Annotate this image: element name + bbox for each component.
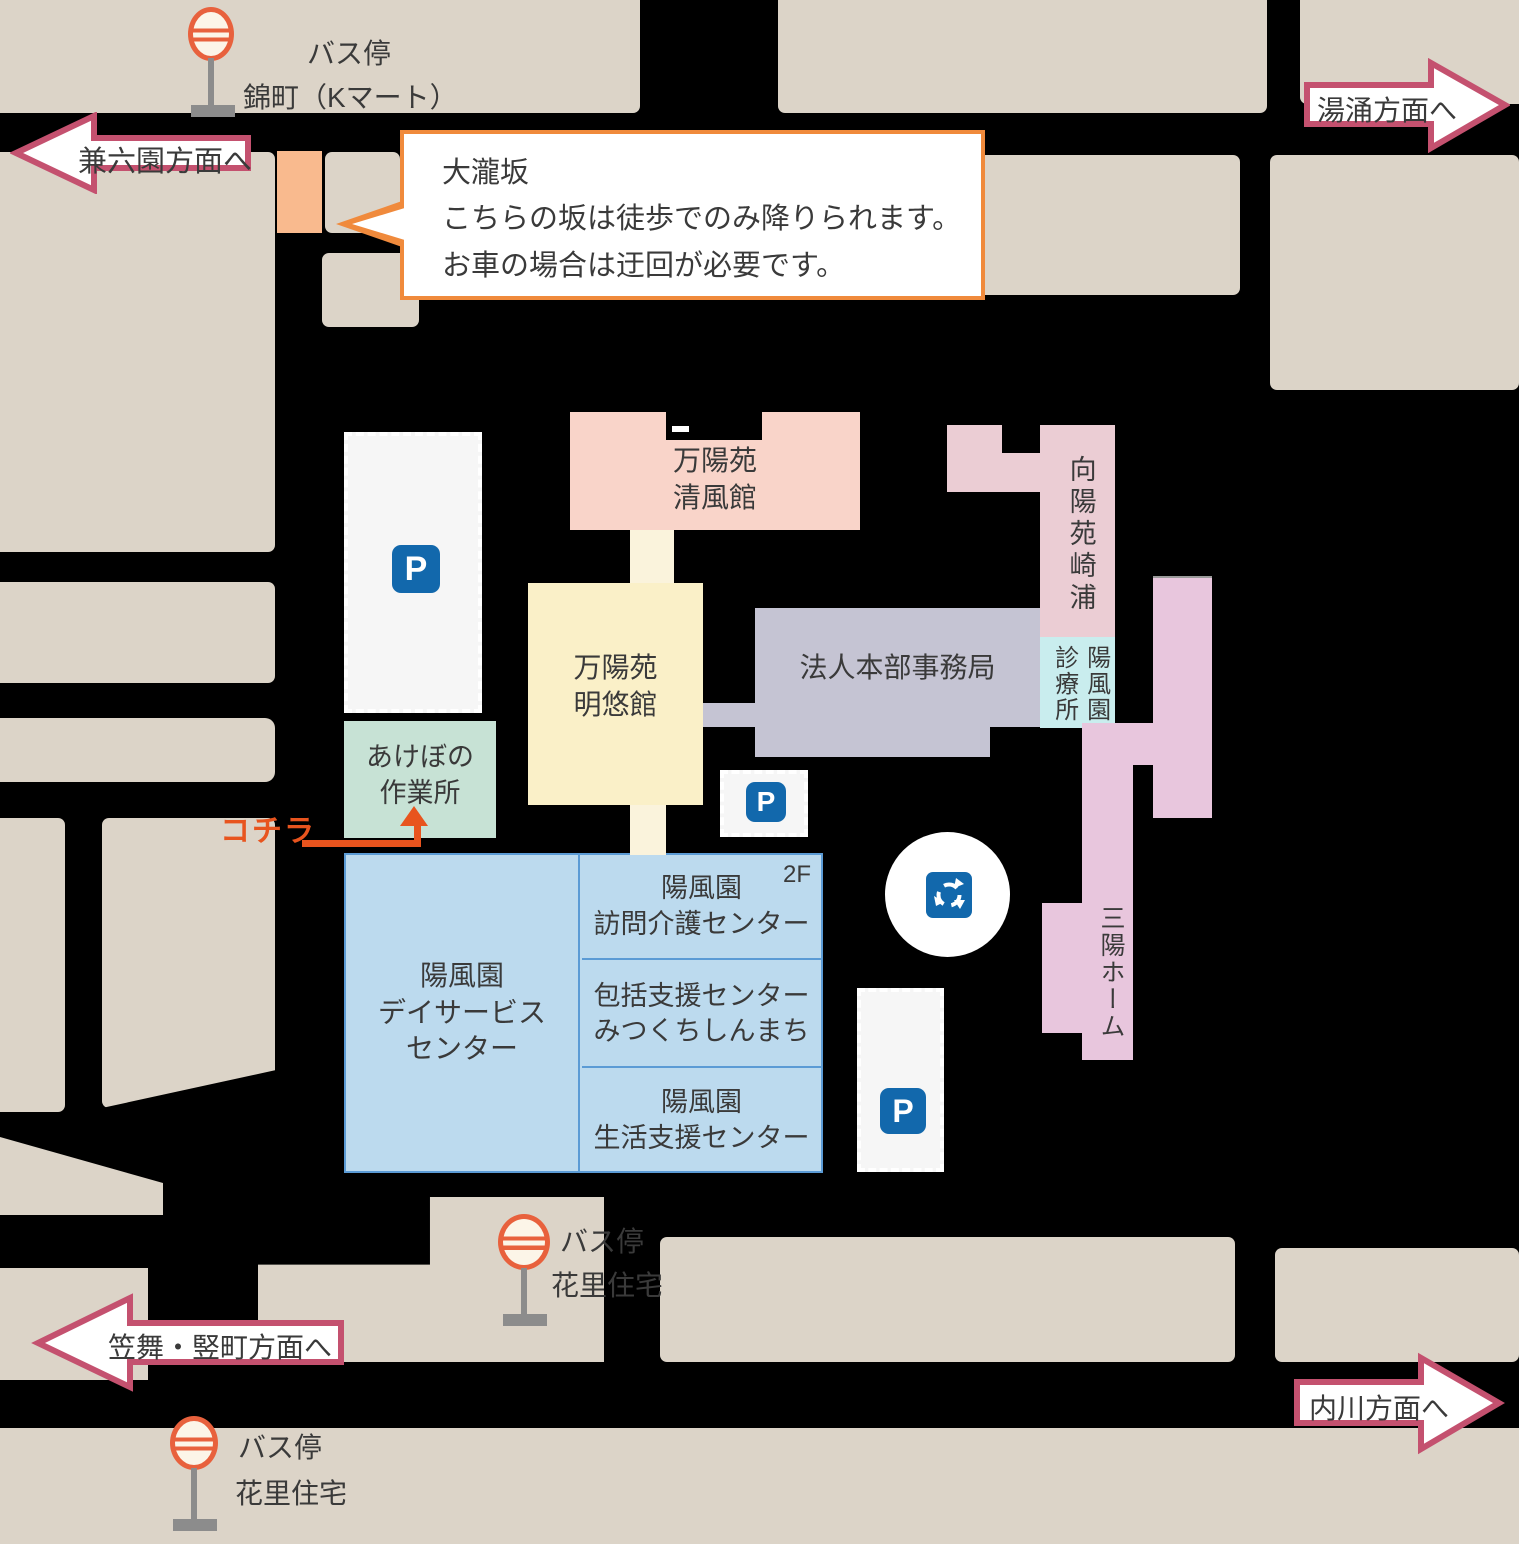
hokatsu-line1: 包括支援センター — [594, 979, 810, 1014]
parking-letter: P — [405, 550, 428, 589]
homon-line2: 訪問介護センター — [594, 907, 810, 942]
city-block — [778, 0, 1267, 113]
bus-stop-name: 錦町（Kマート） — [243, 80, 458, 117]
arrow-uchikawa: 内川方面へ — [1293, 1351, 1505, 1455]
parking-icon: P — [392, 545, 440, 593]
building-koyoen — [947, 453, 1040, 492]
arrow-uchikawa-label: 内川方面へ — [1309, 1387, 1449, 1427]
bus-stop-base — [173, 1519, 217, 1531]
city-block — [0, 1137, 163, 1215]
bus-stop-pole — [521, 1268, 527, 1316]
here-arrow-head — [400, 806, 428, 826]
seifukan-line1: 万陽苑 — [673, 445, 757, 476]
bus-stop-sign-icon — [170, 1416, 218, 1470]
city-block — [1275, 1248, 1519, 1362]
callout-line1: こちらの坂は徒歩でのみ降りられます。 — [442, 200, 961, 238]
bus-stop-label: バス停 — [307, 36, 391, 73]
callout-line2: お車の場合は迂回が必要です。 — [442, 247, 845, 285]
meiyukan-line2: 明悠館 — [573, 689, 657, 720]
here-arrow-line — [302, 840, 420, 847]
callout-title: 大瀧坂 — [442, 154, 529, 192]
here-arrow-stem — [414, 824, 421, 847]
bus-stop-label: バス停 — [560, 1224, 644, 1261]
building-welfare: 陽風園 デイサービス センター 陽風園 訪問介護センター 2F 包括支援センター… — [344, 853, 823, 1173]
building-honbu-label: 法人本部事務局 — [755, 650, 1040, 687]
arrow-kenrokuen-label: 兼六園方面へ — [78, 138, 252, 180]
city-block — [0, 718, 275, 782]
bus-stop-sign-icon — [188, 7, 234, 61]
arrow-kasamai: 笠舞・竪町方面へ — [30, 1293, 345, 1392]
building-sanyo — [1153, 576, 1212, 818]
arrow-yuwaku: 湯涌方面へ — [1303, 58, 1510, 153]
building-seifukan-label: 万陽苑 清風館 — [570, 443, 860, 517]
parking-icon: P — [880, 1088, 926, 1134]
hokatsu-line2: みつくちしんまち — [594, 1014, 810, 1049]
city-block — [660, 1237, 1235, 1362]
bus-stop-name: 花里住宅 — [235, 1476, 347, 1513]
parking-letter: P — [757, 786, 776, 818]
day-service-line3: センター — [406, 1031, 518, 1067]
building-honbu-ext — [755, 727, 990, 757]
homon-line1: 陽風園 — [661, 871, 742, 906]
day-service-line1: 陽風園 — [420, 958, 504, 994]
bus-stop-pole — [208, 58, 214, 107]
city-block — [0, 1428, 1519, 1544]
meiyukan-line1: 万陽苑 — [573, 652, 657, 683]
access-map: 万陽苑 清風館 万陽苑 明悠館 法人本部事務局 向陽苑崎浦 陽風園 診療所 三陽… — [0, 0, 1519, 1544]
building-clinic-word: 診療所 — [1048, 645, 1080, 729]
city-block — [0, 152, 275, 552]
city-block — [1270, 155, 1519, 390]
bus-stop-sign-icon — [498, 1214, 550, 1270]
building-honbu-link — [703, 703, 755, 727]
bus-stop-label: バス停 — [238, 1430, 322, 1467]
bus-stop-name: 花里住宅 — [551, 1268, 663, 1305]
building-seifukan-mark — [672, 426, 689, 432]
akebono-line1: あけぼの — [366, 742, 474, 772]
seikatsu-line1: 陽風園 — [661, 1085, 742, 1120]
building-clinic-name: 陽風園 — [1080, 645, 1112, 729]
parking-letter: P — [892, 1093, 913, 1130]
building-meiyukan-label: 万陽苑 明悠館 — [528, 650, 703, 724]
arrow-yuwaku-label: 湯涌方面へ — [1317, 89, 1457, 129]
corridor — [630, 805, 666, 855]
city-block — [0, 818, 65, 1112]
cell-day-service: 陽風園 デイサービス センター — [346, 855, 580, 1171]
building-koyoen-label: 向陽苑崎浦 — [1062, 455, 1098, 635]
building-sanyo-label: 三陽ホーム — [1094, 905, 1127, 1030]
day-service-line2: デイサービス — [378, 995, 546, 1031]
parking-lot-south — [857, 988, 944, 1172]
bus-stop-pole — [191, 1468, 197, 1521]
otakizaka-callout: 大瀧坂 こちらの坂は徒歩でのみ降りられます。 お車の場合は迂回が必要です。 — [400, 130, 985, 300]
akebono-line2: 作業所 — [380, 778, 461, 808]
callout-tail — [352, 207, 408, 241]
roundabout-icon — [926, 872, 972, 918]
building-akebono-label: あけぼの 作業所 — [344, 740, 496, 811]
corridor — [630, 530, 674, 584]
seikatsu-line2: 生活支援センター — [594, 1121, 810, 1156]
cell-hokatsu: 包括支援センター みつくちしんまち — [582, 962, 821, 1068]
otakizaka-slope — [277, 151, 322, 233]
city-block — [102, 818, 275, 1108]
arrow-kasamai-label: 笠舞・竪町方面へ — [108, 1326, 332, 1366]
cell-seikatsu: 陽風園 生活支援センター — [582, 1070, 821, 1171]
arrow-kenrokuen: 兼六園方面へ — [10, 112, 252, 194]
city-block — [0, 582, 275, 683]
parking-icon: P — [746, 782, 786, 822]
bus-stop-base — [503, 1314, 547, 1326]
seifukan-line2: 清風館 — [673, 482, 757, 513]
floor-label-2f: 2F — [783, 859, 811, 891]
